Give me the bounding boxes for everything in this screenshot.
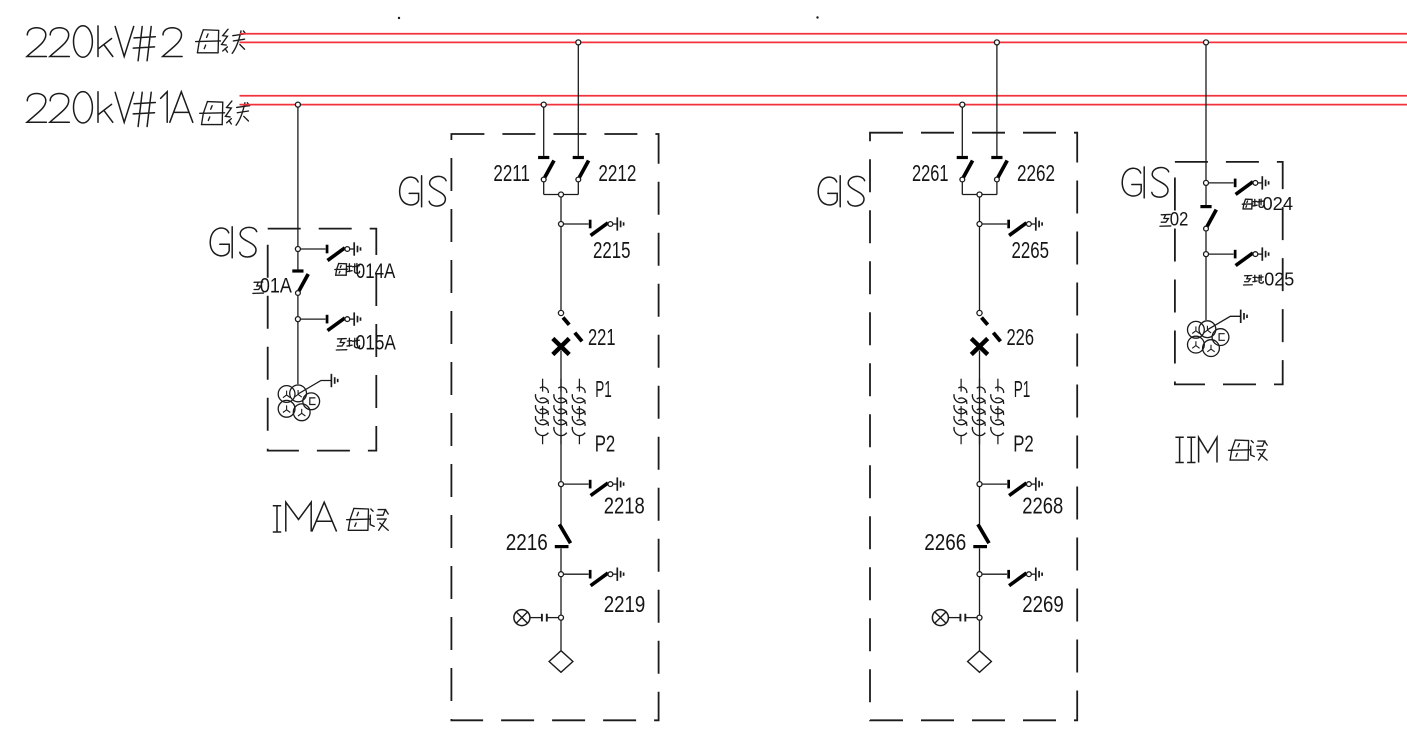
svg-text:2266: 2266	[924, 529, 966, 555]
svg-text:02: 02	[1170, 209, 1189, 230]
svg-text:024: 024	[1263, 193, 1294, 214]
svg-text:2216: 2216	[506, 529, 548, 555]
svg-text:2269: 2269	[1022, 591, 1064, 617]
svg-text:2219: 2219	[604, 591, 646, 617]
svg-text:2211: 2211	[493, 160, 530, 186]
svg-text:P2: P2	[1013, 431, 1033, 457]
svg-text:P1: P1	[595, 376, 612, 402]
svg-text:2262: 2262	[1017, 160, 1055, 186]
svg-text:2212: 2212	[598, 160, 636, 186]
svg-text:2265: 2265	[1012, 237, 1050, 263]
svg-text:2218: 2218	[604, 492, 645, 518]
svg-text:2268: 2268	[1022, 492, 1063, 518]
svg-text:01A: 01A	[260, 275, 292, 298]
svg-text:221: 221	[588, 324, 616, 350]
svg-text:2261: 2261	[912, 160, 949, 186]
svg-text:025: 025	[1264, 269, 1294, 290]
svg-text:P1: P1	[1014, 376, 1031, 402]
svg-text:014A: 014A	[356, 260, 396, 283]
svg-text:226: 226	[1007, 324, 1035, 350]
svg-text:P2: P2	[595, 431, 616, 457]
svg-text:015A: 015A	[356, 332, 396, 355]
svg-text:2215: 2215	[593, 237, 631, 263]
